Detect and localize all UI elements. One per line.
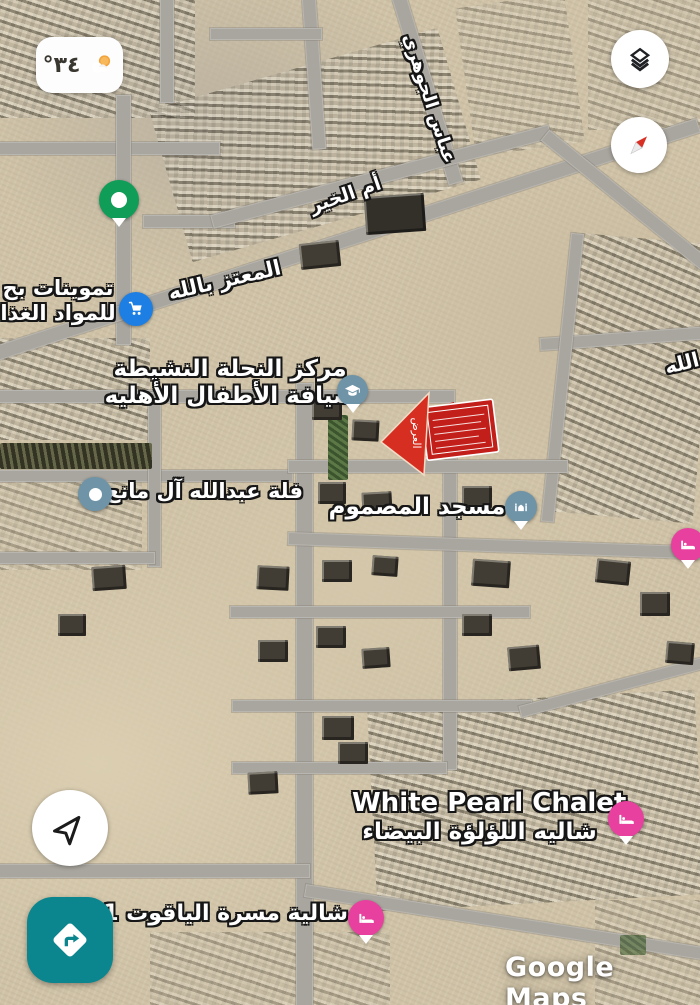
road bbox=[288, 532, 700, 560]
layers-icon bbox=[626, 45, 654, 73]
building bbox=[322, 560, 352, 582]
place-label-villa-abdullah[interactable]: فلة عبدالله آل مانع bbox=[118, 479, 303, 504]
place-label-line: White Pearl Chalet bbox=[352, 788, 607, 819]
mosque-icon bbox=[505, 491, 537, 523]
pin-pointer bbox=[112, 218, 126, 227]
temperature-value: °٣٤ bbox=[43, 53, 81, 78]
partly-cloudy-icon bbox=[86, 52, 116, 78]
pin-pointer bbox=[346, 404, 360, 413]
building bbox=[322, 716, 354, 740]
google-maps-satellite-view: عباس الجوهري أم الخير المعتز بالله الله … bbox=[0, 0, 700, 1005]
pin-pointer bbox=[681, 560, 695, 569]
road bbox=[0, 864, 310, 878]
directions-diamond-icon bbox=[48, 918, 92, 962]
compass-icon bbox=[624, 130, 654, 160]
building bbox=[247, 771, 278, 795]
building bbox=[371, 555, 398, 577]
building bbox=[595, 558, 631, 585]
place-label-white-pearl[interactable]: White Pearl Chalet شاليه اللؤلؤة البيضاء bbox=[352, 788, 607, 846]
building bbox=[471, 559, 511, 589]
my-location-button[interactable] bbox=[32, 790, 108, 866]
dot-icon bbox=[78, 477, 112, 511]
lodging-pin[interactable] bbox=[348, 900, 384, 936]
vegetation-strip bbox=[328, 415, 348, 480]
building bbox=[258, 640, 288, 662]
building-cluster bbox=[150, 932, 390, 1005]
grocery-store-pin[interactable] bbox=[119, 292, 153, 326]
road bbox=[210, 28, 322, 40]
shopping-cart-icon bbox=[119, 292, 153, 326]
pin-center-dot bbox=[111, 192, 127, 208]
tree-row bbox=[0, 443, 152, 469]
pin-pointer bbox=[359, 935, 373, 944]
bed-icon bbox=[671, 528, 700, 562]
lodging-pin[interactable] bbox=[671, 528, 700, 562]
compass-button[interactable] bbox=[611, 117, 667, 173]
education-center-pin[interactable] bbox=[337, 375, 368, 406]
building bbox=[91, 565, 127, 591]
navigation-arrow-icon bbox=[52, 810, 88, 846]
lodging-pin[interactable] bbox=[608, 801, 644, 837]
mosque-pin[interactable] bbox=[505, 491, 537, 523]
place-label-line: شاليه اللؤلؤة البيضاء bbox=[352, 819, 607, 846]
graduation-cap-icon bbox=[337, 375, 368, 406]
google-maps-watermark: Google Maps bbox=[505, 952, 700, 1005]
road bbox=[0, 142, 220, 155]
red-arrow-annotation: العرض bbox=[372, 386, 500, 478]
layers-button[interactable] bbox=[611, 30, 669, 88]
pin-pointer bbox=[514, 521, 528, 530]
building bbox=[507, 645, 541, 672]
building bbox=[665, 641, 695, 665]
green-place-pin[interactable] bbox=[99, 180, 139, 220]
directions-button[interactable] bbox=[27, 897, 113, 983]
pin-pointer bbox=[619, 836, 633, 845]
green-dot-pin bbox=[99, 180, 139, 220]
villa-place-pin[interactable] bbox=[78, 477, 112, 511]
road bbox=[232, 700, 532, 712]
building bbox=[338, 742, 368, 764]
building bbox=[58, 614, 86, 636]
road bbox=[160, 0, 174, 103]
building bbox=[256, 565, 289, 591]
road bbox=[0, 552, 155, 564]
building bbox=[361, 647, 390, 669]
place-label-masjid[interactable]: مسجد المصموم bbox=[328, 494, 506, 521]
building bbox=[640, 592, 670, 616]
place-label-yaqoot[interactable]: شالية مسرة الياقوت 1 bbox=[116, 901, 348, 927]
pin-center-dot bbox=[89, 488, 102, 501]
bed-icon bbox=[348, 900, 384, 936]
building bbox=[462, 614, 492, 636]
annotation-arrow-text: العرض bbox=[410, 417, 423, 448]
building bbox=[316, 626, 346, 648]
building bbox=[364, 193, 427, 235]
bed-icon bbox=[608, 801, 644, 837]
weather-chip[interactable]: °٣٤ bbox=[36, 37, 123, 93]
